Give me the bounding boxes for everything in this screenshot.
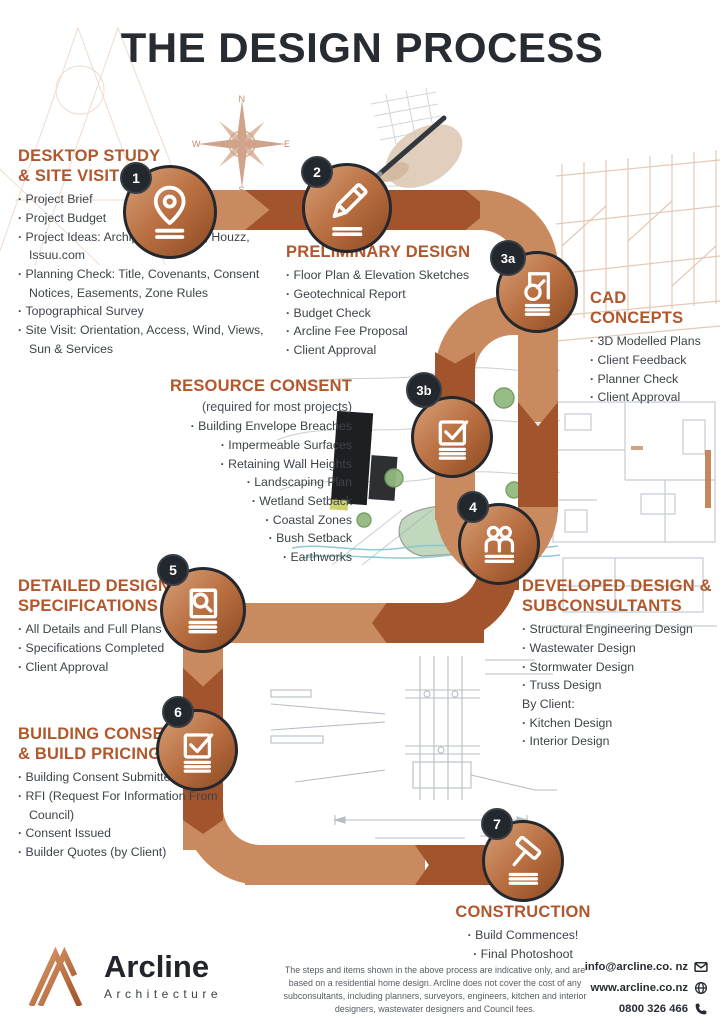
step-2-block: PRELIMINARY DESIGN Floor Plan & Elevatio… — [286, 242, 511, 360]
step-4-heading: DEVELOPED DESIGN & SUBCONSULTANTS — [522, 576, 722, 616]
checkbox-icon — [170, 723, 225, 778]
step-4-block: DEVELOPED DESIGN & SUBCONSULTANTS Struct… — [522, 576, 722, 751]
list-item: Client Feedback — [590, 351, 722, 370]
website-text: www.arcline.co.nz — [590, 982, 688, 994]
step-4-list: Structural Engineering Design Wastewater… — [522, 620, 722, 751]
list-item: Wetland Setback — [108, 492, 352, 511]
step-number-badge: 3a — [490, 240, 526, 276]
list-item: Budget Check — [286, 304, 511, 323]
list-item: Floor Plan & Elevation Sketches — [286, 266, 511, 285]
step-3b-block: RESOURCE CONSENT (required for most proj… — [108, 376, 352, 567]
step-2-heading: PRELIMINARY DESIGN — [286, 242, 511, 262]
envelope-icon — [694, 960, 708, 974]
pencil-icon — [317, 178, 377, 238]
list-item: Geotechnical Report — [286, 285, 511, 304]
list-item: Landscaping Plan — [108, 473, 352, 492]
globe-icon — [694, 981, 708, 995]
step-3b-heading: RESOURCE CONSENT — [108, 376, 352, 396]
step-number-badge: 5 — [157, 554, 189, 586]
people-icon — [472, 517, 527, 572]
list-item: Planning Check: Title, Covenants, Consen… — [18, 265, 272, 302]
list-item: Kitchen Design — [522, 714, 722, 733]
list-item: Interior Design — [522, 732, 722, 751]
list-item: Site Visit: Orientation, Access, Wind, V… — [18, 321, 272, 358]
contact-phone[interactable]: 0800 326 466 — [585, 998, 708, 1019]
list-item: Client Approval — [286, 341, 511, 360]
step-3a-list: 3D Modelled Plans Client Feedback Planne… — [590, 332, 722, 407]
step-3b-list: Building Envelope Breaches Impermeable S… — [108, 417, 352, 567]
arcline-logo: Arcline Architecture — [26, 946, 222, 1006]
list-item: Coastal Zones — [108, 511, 352, 530]
list-item: 3D Modelled Plans — [590, 332, 722, 351]
step-3a-block: CAD CONCEPTS 3D Modelled Plans Client Fe… — [590, 288, 722, 407]
list-item: Stormwater Design — [522, 658, 722, 677]
list-item: Bush Setback — [108, 529, 352, 548]
list-item: RFI (Request For Information From Counci… — [18, 787, 236, 824]
list-item: Impermeable Surfaces — [108, 436, 352, 455]
step-number-badge: 4 — [457, 491, 489, 523]
step-7-heading: CONSTRUCTION — [428, 902, 618, 922]
compass-n-label: N — [239, 94, 246, 104]
phone-text: 0800 326 466 — [619, 1003, 688, 1015]
step-number-badge: 2 — [301, 156, 333, 188]
list-item: Structural Engineering Design — [522, 620, 722, 639]
list-item: Consent Issued — [18, 824, 236, 843]
infographic-page: N E S W — [0, 0, 724, 1024]
contact-website[interactable]: www.arcline.co.nz — [585, 977, 708, 998]
list-item: Building Envelope Breaches — [108, 417, 352, 436]
email-text: info@arcline.co. nz — [585, 961, 688, 973]
node-step-3b — [411, 396, 493, 478]
step-3b-subtitle: (required for most projects) — [108, 400, 352, 414]
list-item: Earthworks — [108, 548, 352, 567]
list-item: Client Approval — [590, 388, 722, 407]
list-item: Retaining Wall Heights — [108, 455, 352, 474]
compass-e-label: E — [284, 139, 290, 149]
list-item: Builder Quotes (by Client) — [18, 843, 236, 862]
list-item: By Client: — [522, 695, 722, 714]
contact-block: info@arcline.co. nz www.arcline.co.nz 08… — [585, 956, 708, 1019]
contact-email[interactable]: info@arcline.co. nz — [585, 956, 708, 977]
phone-icon — [694, 1002, 708, 1016]
list-item: Planner Check — [590, 370, 722, 389]
checkbox-icon — [425, 410, 480, 465]
location-pin-icon — [138, 180, 201, 243]
path-arrow-left — [372, 603, 484, 643]
list-item: Client Approval — [18, 658, 230, 677]
path-segment-6-7h — [245, 845, 425, 885]
step-number-badge: 3b — [406, 372, 442, 408]
step-7-block: CONSTRUCTION Build Commences! Final Phot… — [428, 902, 618, 964]
disclaimer-text: The steps and items shown in the above p… — [278, 964, 592, 1016]
step-number-badge: 6 — [162, 696, 194, 728]
step-number-badge: 1 — [120, 162, 152, 194]
list-item: Build Commences! — [428, 926, 618, 945]
step-2-list: Floor Plan & Elevation Sketches Geotechn… — [286, 266, 511, 359]
list-item: Truss Design — [522, 676, 722, 695]
brand-subtitle: Architecture — [104, 987, 222, 1001]
step-number-badge: 7 — [481, 808, 513, 840]
list-item: Topographical Survey — [18, 302, 272, 321]
list-item: Wastewater Design — [522, 639, 722, 658]
hammer-icon — [496, 834, 551, 889]
document-search-icon — [174, 581, 232, 639]
step-3a-heading: CAD CONCEPTS — [590, 288, 722, 328]
brand-name: Arcline — [104, 951, 222, 982]
list-item: Arcline Fee Proposal — [286, 322, 511, 341]
arcline-logo-mark — [26, 946, 90, 1006]
